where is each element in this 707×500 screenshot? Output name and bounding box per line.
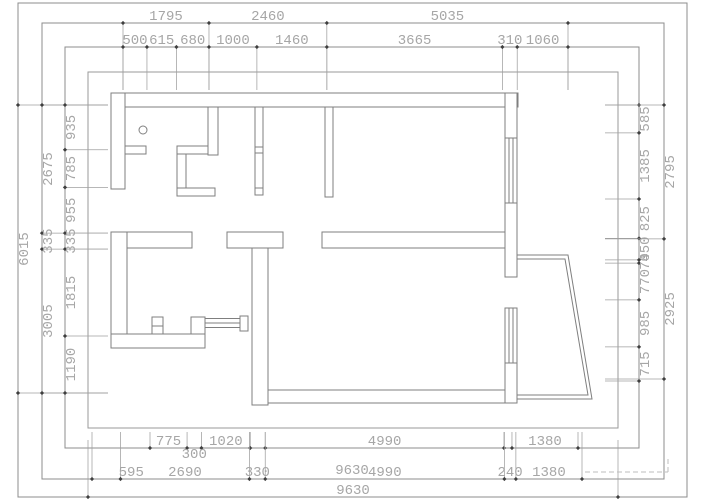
dim-tick bbox=[90, 477, 94, 481]
bay-window-inner bbox=[517, 259, 588, 395]
dim-label: 2925 bbox=[663, 292, 679, 326]
bathroom-wall-step bbox=[191, 317, 205, 334]
dim-tick bbox=[637, 379, 641, 383]
dim-label: 2690 bbox=[168, 465, 202, 481]
floor-plan-svg: 1795246050355006156801000146036653101060… bbox=[0, 0, 707, 500]
dim-tick bbox=[248, 446, 252, 450]
dim-tick bbox=[662, 237, 666, 241]
dim-label: 785 bbox=[64, 156, 80, 181]
window-icon bbox=[505, 138, 517, 203]
dim-tick bbox=[40, 391, 44, 395]
dim-tick bbox=[502, 446, 506, 450]
dim-frame-middle bbox=[42, 23, 664, 479]
dim-label: 585 bbox=[638, 106, 654, 131]
building-walls bbox=[88, 72, 618, 428]
dim-tick bbox=[637, 298, 641, 302]
door-jamb bbox=[240, 316, 248, 331]
dim-label: 300 bbox=[182, 447, 207, 463]
dim-label: 1380 bbox=[528, 434, 562, 450]
dim-label: 6015 bbox=[17, 232, 33, 266]
dim-tick bbox=[637, 197, 641, 201]
partition-wall-b bbox=[255, 107, 263, 195]
dim-tick bbox=[63, 103, 67, 107]
top-wall bbox=[111, 93, 518, 107]
dim-label: 775 bbox=[156, 434, 181, 450]
dim-label: 955 bbox=[64, 198, 80, 223]
column-symbol bbox=[139, 126, 147, 134]
floor-plan-canvas: 1795246050355006156801000146036653101060… bbox=[0, 0, 707, 500]
dim-label: 595 bbox=[119, 465, 144, 481]
left-wall bbox=[111, 93, 125, 189]
dim-label: 4990 bbox=[368, 434, 402, 450]
dim-label: 2460 bbox=[251, 9, 285, 25]
dim-chain-right-inner-col: 585138582545070770985715 bbox=[605, 103, 654, 383]
closet-wall-bottom bbox=[177, 188, 215, 196]
dim-tick bbox=[63, 391, 67, 395]
dim-label: 3005 bbox=[41, 304, 57, 338]
dim-label: 4990 bbox=[368, 465, 402, 481]
dashed-mark bbox=[585, 456, 668, 472]
dim-chain-top-inner-row: 5006156801000146036653101060 bbox=[121, 33, 570, 90]
exterior-boundary bbox=[88, 72, 618, 428]
dim-tick bbox=[207, 21, 211, 25]
dim-tick bbox=[580, 477, 584, 481]
living-wall-bottom bbox=[268, 390, 505, 403]
dim-label: 825 bbox=[638, 206, 654, 231]
dim-tick bbox=[510, 446, 514, 450]
dim-label: 985 bbox=[638, 311, 654, 336]
dim-tick bbox=[63, 148, 67, 152]
dim-tick bbox=[662, 103, 666, 107]
dim-tick bbox=[40, 103, 44, 107]
dim-label: 935 bbox=[64, 115, 80, 140]
dim-label: 1385 bbox=[638, 149, 654, 183]
dim-label: 680 bbox=[180, 33, 205, 49]
dim-label: 1795 bbox=[149, 9, 183, 25]
dim-tick bbox=[63, 334, 67, 338]
partition-wall-a bbox=[208, 107, 218, 155]
dim-label: 9630 bbox=[336, 483, 370, 499]
dim-label: 1020 bbox=[209, 434, 243, 450]
window-icon bbox=[505, 308, 517, 363]
right-wall-segment bbox=[505, 203, 517, 277]
dim-label: 1060 bbox=[526, 33, 560, 49]
dim-label: 1190 bbox=[64, 348, 80, 382]
dim-label: 5035 bbox=[431, 9, 465, 25]
dim-label: 2795 bbox=[663, 155, 679, 189]
dim-label: 1380 bbox=[532, 465, 566, 481]
right-wall-segment bbox=[505, 93, 517, 138]
dim-tick bbox=[637, 345, 641, 349]
dim-tick bbox=[566, 21, 570, 25]
dim-label: 335 bbox=[64, 228, 80, 253]
dim-label: 330 bbox=[245, 465, 270, 481]
bathroom-fixture bbox=[152, 317, 163, 326]
bay-window-outer bbox=[517, 255, 592, 399]
dim-label: 310 bbox=[497, 33, 522, 49]
dim-tick bbox=[325, 45, 329, 49]
bathroom-fixture bbox=[152, 326, 163, 334]
dim-tick bbox=[174, 45, 178, 49]
dim-label: 1000 bbox=[216, 33, 250, 49]
dim-tick bbox=[576, 446, 580, 450]
dim-label: 335 bbox=[41, 228, 57, 253]
dim-label: 2675 bbox=[41, 152, 57, 186]
dim-label-overlap: 9630 bbox=[335, 463, 369, 479]
dim-label: 70 bbox=[638, 253, 654, 270]
dim-chain-left-inner-col: 93578595533518151190 bbox=[63, 103, 108, 395]
dim-label: 3665 bbox=[398, 33, 432, 49]
hall-wall bbox=[227, 232, 283, 248]
living-wall-left bbox=[252, 248, 268, 405]
right-wall-segment bbox=[505, 363, 517, 403]
closet-wall-side bbox=[177, 154, 186, 188]
bathroom-wall-bottom bbox=[111, 334, 205, 348]
dim-tick bbox=[63, 185, 67, 189]
dim-label: 615 bbox=[149, 33, 174, 49]
dim-label: 240 bbox=[498, 465, 523, 481]
dim-tick bbox=[616, 495, 620, 499]
dim-tick bbox=[16, 103, 20, 107]
dim-tick bbox=[255, 45, 259, 49]
dim-label: 1815 bbox=[64, 276, 80, 310]
bedroom-wall bbox=[322, 232, 505, 248]
bathroom-wall-left bbox=[111, 232, 127, 348]
dim-tick bbox=[121, 21, 125, 25]
dim-tick bbox=[325, 21, 329, 25]
closet-wall-top bbox=[177, 146, 208, 154]
partition-wall-c bbox=[325, 107, 333, 197]
dim-tick bbox=[16, 391, 20, 395]
left-wall-stub bbox=[125, 146, 146, 154]
dim-tick bbox=[566, 45, 570, 49]
dim-label: 1460 bbox=[275, 33, 309, 49]
dim-tick bbox=[662, 377, 666, 381]
dim-tick bbox=[207, 45, 211, 49]
dim-label: 500 bbox=[122, 33, 147, 49]
dim-tick bbox=[86, 495, 90, 499]
dim-label: 715 bbox=[638, 351, 654, 376]
dim-tick bbox=[148, 446, 152, 450]
dim-label: 770 bbox=[638, 269, 654, 294]
